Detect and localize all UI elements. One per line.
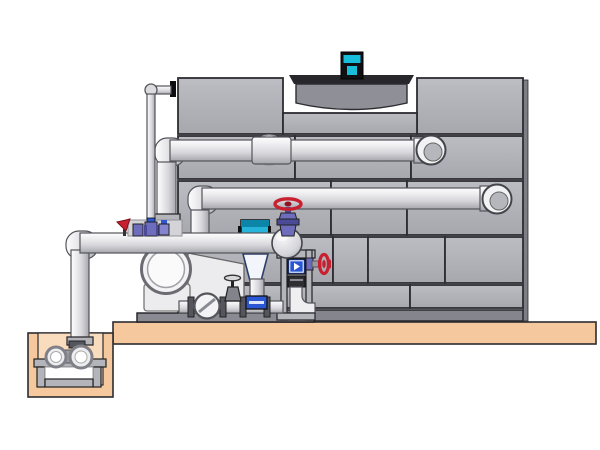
pipe-end-opening: [490, 192, 508, 210]
pipe-end-opening: [424, 143, 442, 161]
actuator-cap: [241, 220, 269, 227]
diagram-canvas: [0, 0, 600, 450]
pipe-coupling: [252, 137, 291, 164]
valve-knob: [161, 220, 167, 224]
valve-handle: [225, 275, 241, 281]
top-left-face: [180, 80, 282, 85]
valve-cap: [144, 225, 147, 236]
valve-flange: [277, 219, 299, 225]
riser-stub: [191, 210, 209, 236]
pipe-run: [170, 140, 422, 161]
handwheel-hub: [285, 202, 292, 207]
ball-valve: [159, 224, 169, 235]
pipe-flange: [188, 297, 194, 317]
handwheel-hub: [322, 260, 326, 268]
stand-leg: [93, 367, 101, 387]
stand-brace: [45, 379, 93, 387]
valve-body: [280, 225, 296, 236]
fan-cowl: [289, 75, 414, 110]
stand-gap: [45, 367, 93, 379]
actuator-tab: [238, 226, 241, 233]
pipe-run: [202, 188, 490, 209]
fitting-stripe: [249, 301, 264, 304]
tower-panel: [445, 237, 523, 283]
motor-top-band: [344, 55, 361, 63]
pump-suction-inner: [148, 251, 185, 288]
pump-casing-hub: [75, 351, 87, 363]
frame-bottom-plate: [277, 313, 315, 320]
tower-center-strip: [283, 113, 417, 134]
tower-panel: [410, 285, 523, 308]
fan-cowl-body: [296, 84, 407, 110]
ball-valve: [133, 224, 143, 236]
valve-body: [225, 287, 241, 301]
pit-riser: [71, 250, 89, 342]
platform-slab: [113, 322, 596, 344]
motor-face: [347, 66, 357, 75]
pump-motor-hub: [51, 352, 62, 363]
fan-motor: [341, 52, 363, 79]
tower-panel: [333, 237, 368, 283]
top-right-face: [419, 80, 522, 85]
thin-riser: [147, 94, 155, 228]
handwheel-cap: [327, 260, 331, 269]
concrete-platform: [113, 322, 596, 344]
cooling-tower-diagram: [0, 0, 600, 450]
tower-top-right-block: [417, 78, 523, 134]
stand-leg: [37, 367, 45, 387]
junction-box: [288, 276, 305, 287]
tower-top-left-block: [178, 78, 283, 134]
junction-slot: [290, 279, 303, 281]
tower-panel: [368, 237, 445, 283]
actuator-tab: [268, 226, 271, 233]
discharge-riser: [157, 162, 176, 218]
